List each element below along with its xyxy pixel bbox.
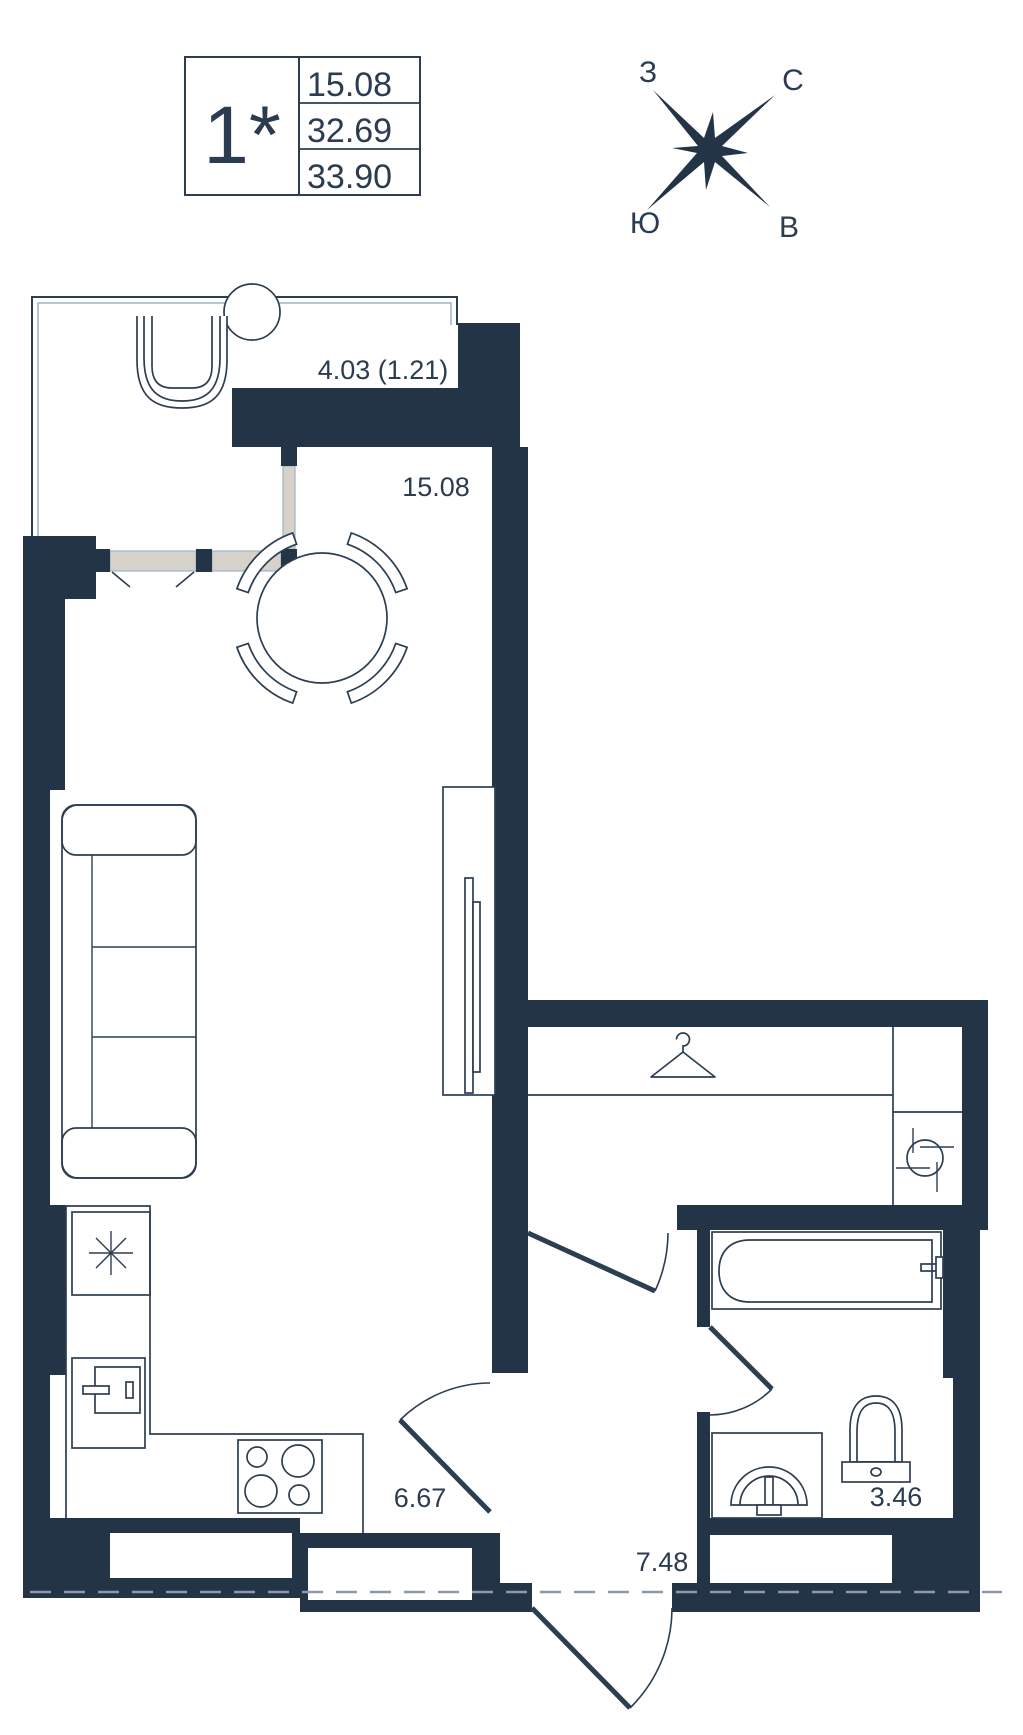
compass-star-icon: [647, 90, 775, 210]
door-swing-arc: [400, 1383, 490, 1420]
room-label-kitchen: 6.67: [394, 1483, 447, 1513]
door-leaf: [710, 1327, 772, 1389]
wardrobe-icon: [443, 787, 495, 1095]
kitchen-sink-icon: [72, 1358, 145, 1448]
shaft-opening: [710, 1535, 892, 1583]
water-heater-icon: [896, 1128, 954, 1192]
snowflake-icon: [89, 1231, 133, 1275]
room-label-living: 15.08: [402, 472, 470, 502]
balcony-door-marks: [112, 572, 194, 587]
room-label-bathroom: 3.46: [870, 1482, 923, 1512]
compass-label-west: З: [639, 56, 657, 89]
compass-rose: З С Ю В: [630, 56, 804, 244]
apartment-info-table: 1* 15.08 32.69 33.90: [185, 57, 420, 196]
door-swing-arc: [710, 1389, 772, 1415]
entry-door: [532, 1608, 672, 1708]
toilet-icon: [842, 1396, 910, 1482]
fridge-icon: [72, 1212, 150, 1295]
room-door: [528, 1233, 668, 1291]
armchair-icon: [137, 316, 227, 408]
side-table-icon: [224, 284, 280, 340]
area-value-living: 32.69: [307, 112, 392, 150]
floor-plan-page: 1* 15.08 32.69 33.90 З С Ю В: [0, 0, 1023, 1735]
room-label-balcony: 4.03 (1.21): [318, 355, 449, 385]
door-leaf: [528, 1233, 655, 1291]
compass-label-north: С: [782, 64, 804, 97]
bathroom-door: [710, 1327, 772, 1415]
area-value-total: 33.90: [307, 158, 392, 196]
balcony-window-icon: [110, 551, 196, 571]
room-labels: 4.03 (1.21) 15.08 6.67 7.48 3.46: [318, 355, 923, 1577]
rooms-count-label: 1*: [203, 90, 281, 181]
kitchen-window-icon: [110, 1533, 292, 1578]
door-swing-arc: [630, 1608, 672, 1708]
door-leaf: [532, 1608, 630, 1708]
dining-set: [237, 533, 407, 703]
room-label-hall: 7.48: [636, 1547, 689, 1577]
compass-label-east: В: [779, 211, 799, 244]
hanger-icon: [651, 1033, 715, 1077]
area-value-room: 15.08: [307, 66, 392, 104]
bathroom-sink-icon: [712, 1433, 822, 1518]
door-swing-arc: [655, 1233, 668, 1291]
dining-table-icon: [257, 553, 387, 683]
floor-plan-canvas: 1* 15.08 32.69 33.90 З С Ю В: [0, 0, 1023, 1735]
compass-label-south: Ю: [630, 207, 660, 240]
stove-icon: [238, 1440, 322, 1513]
sofa-icon: [62, 805, 196, 1178]
bathtub-icon: [712, 1232, 943, 1309]
